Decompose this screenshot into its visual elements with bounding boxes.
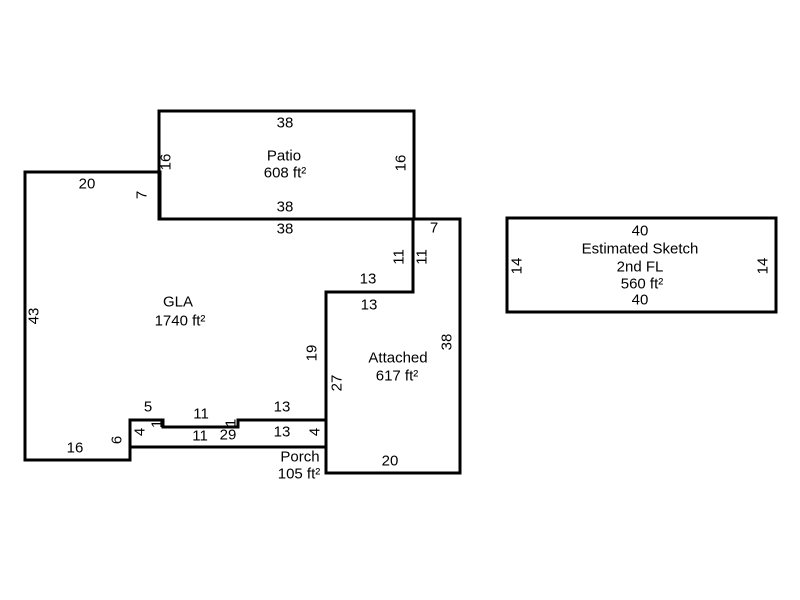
floor-plan-sketch: 38Patio608 ft²1616383820743GLA1740 ft²11… [0, 0, 800, 600]
gla-area: 1740 ft² [155, 314, 206, 329]
gla-dim-right-11: 11 [392, 249, 407, 265]
gla-dim-13: 13 [360, 272, 377, 287]
attached-area: 617 ft² [376, 369, 419, 384]
porch-dim-11: 11 [192, 429, 208, 444]
attached-dim-13: 13 [361, 298, 378, 313]
gla-dim-top: 38 [277, 222, 294, 237]
patio-dim-right: 16 [394, 155, 409, 172]
porch-dim-4-left: 4 [133, 428, 148, 436]
attached-dim-27: 27 [330, 375, 345, 392]
patio-name: Patio [267, 149, 301, 164]
patio-dim-left: 16 [159, 154, 174, 171]
second-floor-dim-bottom: 40 [632, 293, 649, 308]
second-floor-dim-right: 14 [756, 258, 771, 275]
patio-area: 608 ft² [264, 166, 307, 181]
porch-dim-29: 29 [220, 428, 237, 443]
porch-dim-13: 13 [274, 425, 291, 440]
patio-dim-bottom: 38 [277, 200, 294, 215]
gla-dim-5: 5 [144, 400, 152, 415]
porch-dim-4-right: 4 [308, 428, 323, 436]
second-floor-title: Estimated Sketch [582, 242, 699, 257]
gla-dim-13-bottom: 13 [274, 400, 291, 415]
attached-dim-top-7: 7 [430, 221, 438, 236]
attached-dim-right: 38 [440, 334, 455, 351]
second-floor-subtitle: 2nd FL [617, 260, 664, 275]
second-floor-dim-top: 40 [632, 224, 649, 239]
gla-name: GLA [163, 295, 193, 310]
gla-dim-6: 6 [110, 436, 125, 444]
attached-dim-left-11: 11 [415, 249, 430, 265]
porch-area: 105 ft² [278, 467, 321, 482]
gla-dim-leftside: 43 [27, 308, 42, 325]
patio-dim-top: 38 [277, 116, 294, 131]
gla-dim-1-left: 1 [150, 420, 165, 428]
gla-outline [25, 172, 413, 460]
attached-dim-bottom: 20 [382, 454, 399, 469]
gla-dim-19: 19 [305, 345, 320, 362]
second-floor-dim-left: 14 [510, 258, 525, 275]
gla-dim-16: 16 [67, 441, 84, 456]
second-floor-area: 560 ft² [621, 277, 664, 292]
porch-name: Porch [280, 450, 319, 465]
floor-plan-walls [0, 0, 800, 600]
attached-name: Attached [368, 351, 427, 366]
gla-dim-step: 7 [135, 191, 150, 199]
gla-dim-11-bottom: 11 [193, 407, 209, 422]
gla-dim-topleft: 20 [79, 177, 96, 192]
